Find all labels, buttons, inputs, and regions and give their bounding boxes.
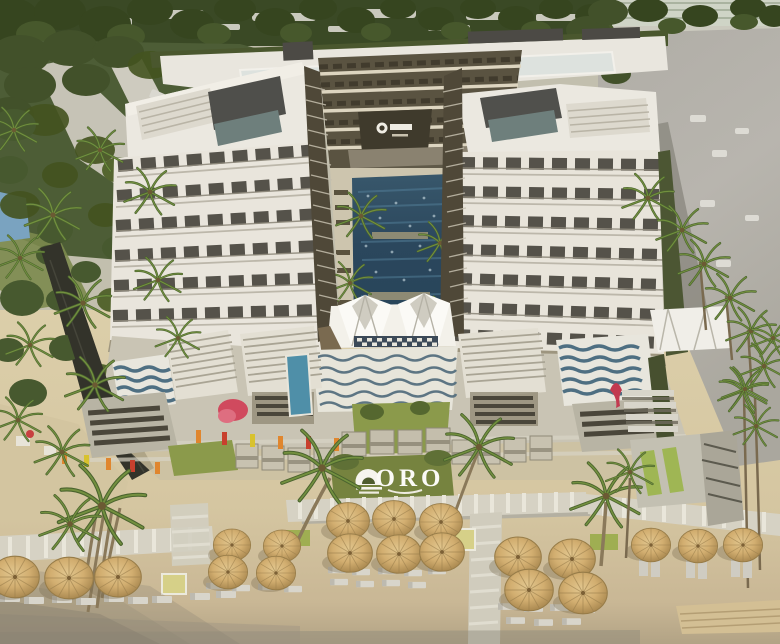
svg-text:ORO: ORO [376, 465, 445, 492]
